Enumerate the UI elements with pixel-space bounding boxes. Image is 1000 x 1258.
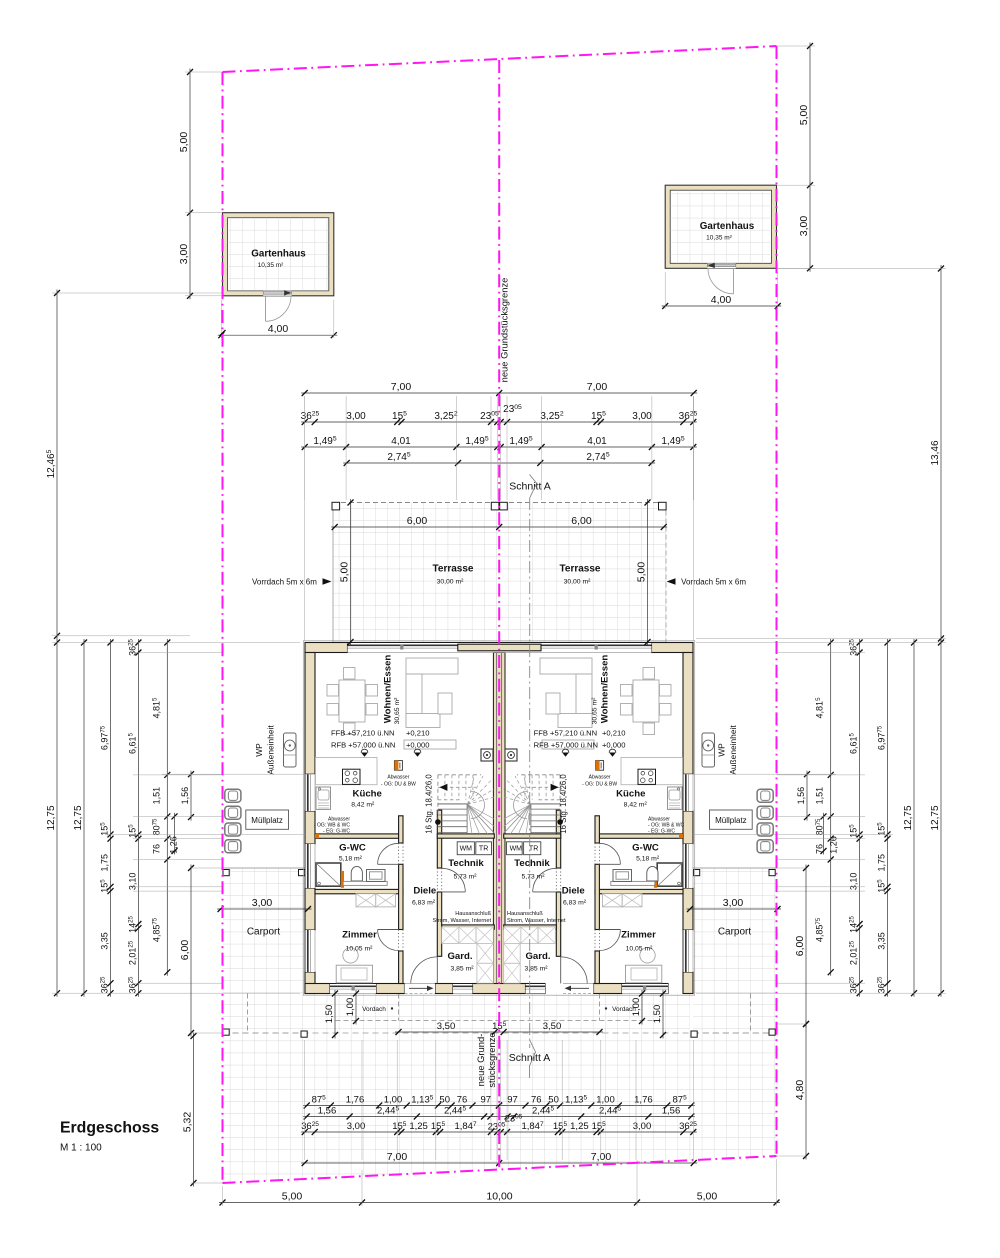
svg-text:76: 76 bbox=[531, 1094, 542, 1105]
svg-text:6,83 m²: 6,83 m² bbox=[412, 900, 436, 907]
svg-text:5,00: 5,00 bbox=[282, 1190, 303, 1202]
svg-text:1,76: 1,76 bbox=[634, 1094, 653, 1105]
svg-text:+0,000: +0,000 bbox=[406, 741, 429, 750]
svg-text:+0,210: +0,210 bbox=[602, 729, 625, 738]
svg-text:Küche: Küche bbox=[616, 789, 645, 800]
svg-text:Außeneinheit: Außeneinheit bbox=[728, 725, 738, 775]
svg-text:RFB +57,000 ü.NN: RFB +57,000 ü.NN bbox=[534, 741, 598, 750]
svg-text:Strom, Wasser, Internet: Strom, Wasser, Internet bbox=[432, 918, 491, 924]
svg-text:1,51: 1,51 bbox=[151, 787, 161, 805]
svg-text:5,00: 5,00 bbox=[178, 132, 190, 153]
svg-text:3,00: 3,00 bbox=[252, 897, 273, 909]
svg-text:10,35 m²: 10,35 m² bbox=[258, 262, 284, 269]
svg-text:1,26: 1,26 bbox=[829, 836, 839, 854]
svg-text:10,05 m²: 10,05 m² bbox=[626, 946, 654, 953]
svg-text:stücksgrenze: stücksgrenze bbox=[486, 1032, 497, 1087]
svg-text:4,01: 4,01 bbox=[391, 436, 411, 447]
svg-text:1,75: 1,75 bbox=[877, 854, 887, 872]
svg-text:1,50: 1,50 bbox=[324, 1005, 335, 1024]
svg-text:1,25: 1,25 bbox=[409, 1121, 428, 1132]
svg-text:12,465: 12,465 bbox=[46, 449, 57, 478]
svg-text:Wohnen/Essen: Wohnen/Essen bbox=[600, 655, 611, 724]
svg-text:WP: WP bbox=[717, 743, 727, 757]
svg-text:3,10: 3,10 bbox=[849, 873, 859, 891]
svg-text:1,75: 1,75 bbox=[100, 854, 110, 872]
svg-text:Abwasser: Abwasser bbox=[589, 775, 611, 781]
svg-text:neue Grundstücksgrenze: neue Grundstücksgrenze bbox=[499, 278, 510, 383]
svg-text:16 Stg. 18,4/26,0: 16 Stg. 18,4/26,0 bbox=[559, 774, 568, 834]
svg-text:WP: WP bbox=[254, 743, 264, 757]
svg-text:Küche: Küche bbox=[353, 789, 382, 800]
svg-text:1,56: 1,56 bbox=[318, 1105, 337, 1116]
svg-text:6,83 m²: 6,83 m² bbox=[563, 900, 587, 907]
svg-text:Schnitt A: Schnitt A bbox=[509, 481, 550, 493]
svg-text:5,32: 5,32 bbox=[182, 1112, 194, 1133]
svg-text:WM: WM bbox=[510, 846, 523, 853]
svg-text:1,00: 1,00 bbox=[384, 1094, 403, 1105]
svg-text:13,46: 13,46 bbox=[930, 440, 941, 465]
svg-text:3,50: 3,50 bbox=[437, 1021, 456, 1032]
svg-text:30,00 m²: 30,00 m² bbox=[564, 579, 592, 586]
svg-text:12,75: 12,75 bbox=[46, 805, 57, 830]
svg-text:6,00: 6,00 bbox=[571, 515, 592, 527]
svg-text:10,00: 10,00 bbox=[486, 1190, 512, 1202]
svg-text:Abwasser: Abwasser bbox=[387, 775, 409, 781]
svg-text:7,00: 7,00 bbox=[587, 381, 608, 393]
svg-text:97: 97 bbox=[507, 1094, 518, 1105]
svg-text:Hausanschluß: Hausanschluß bbox=[507, 911, 543, 917]
svg-text:+0,210: +0,210 bbox=[406, 729, 429, 738]
svg-text:Hausanschluß: Hausanschluß bbox=[455, 911, 491, 917]
svg-text:Vorrdach 5m x 6m: Vorrdach 5m x 6m bbox=[681, 578, 746, 587]
svg-text:12,75: 12,75 bbox=[73, 805, 84, 830]
svg-text:Terrasse: Terrasse bbox=[433, 564, 474, 575]
svg-text:Müllplatz: Müllplatz bbox=[715, 816, 747, 825]
svg-text:- EG: G-WC: - EG: G-WC bbox=[323, 829, 350, 835]
svg-text:3,85 m²: 3,85 m² bbox=[524, 966, 548, 973]
svg-text:FFB +57,210 ü.NN: FFB +57,210 ü.NN bbox=[534, 729, 598, 738]
svg-text:5,18 m²: 5,18 m² bbox=[339, 856, 363, 863]
svg-text:4,00: 4,00 bbox=[268, 323, 289, 335]
svg-text:Schnitt A: Schnitt A bbox=[509, 1052, 550, 1064]
svg-text:3,00: 3,00 bbox=[346, 411, 366, 422]
svg-text:6,00: 6,00 bbox=[179, 940, 191, 961]
svg-text:Zimmer: Zimmer bbox=[621, 930, 656, 941]
svg-text:3,00: 3,00 bbox=[632, 411, 652, 422]
svg-text:FFB +57,210 ü.NN: FFB +57,210 ü.NN bbox=[331, 729, 395, 738]
svg-text:5,00: 5,00 bbox=[339, 562, 351, 583]
svg-text:- EG: G-WC: - EG: G-WC bbox=[648, 829, 675, 835]
svg-text:Müllplatz: Müllplatz bbox=[251, 816, 283, 825]
svg-text:Gartenhaus: Gartenhaus bbox=[700, 221, 755, 232]
svg-text:1,00: 1,00 bbox=[596, 1094, 615, 1105]
svg-text:1,25: 1,25 bbox=[570, 1121, 589, 1132]
svg-text:5,73 m²: 5,73 m² bbox=[453, 874, 477, 881]
svg-text:50: 50 bbox=[548, 1094, 559, 1105]
svg-text:3,00: 3,00 bbox=[347, 1121, 366, 1132]
svg-text:7,00: 7,00 bbox=[391, 381, 412, 393]
svg-text:5,00: 5,00 bbox=[798, 105, 810, 126]
svg-text:3,35: 3,35 bbox=[100, 932, 110, 950]
svg-text:6,00: 6,00 bbox=[794, 936, 806, 957]
svg-text:Diele: Diele bbox=[562, 886, 585, 897]
svg-text:3,00: 3,00 bbox=[178, 244, 190, 265]
svg-text:Technik: Technik bbox=[514, 858, 550, 869]
svg-text:10,35 m²: 10,35 m² bbox=[706, 235, 732, 242]
svg-text:4,80: 4,80 bbox=[794, 1080, 806, 1101]
svg-text:3,85 m²: 3,85 m² bbox=[450, 966, 474, 973]
svg-text:Strom, Wasser, Internet: Strom, Wasser, Internet bbox=[507, 918, 566, 924]
svg-text:Wohnen/Essen: Wohnen/Essen bbox=[383, 655, 394, 724]
svg-text:12,75: 12,75 bbox=[903, 805, 914, 830]
svg-text:7,00: 7,00 bbox=[591, 1151, 612, 1163]
svg-text:RFB +57,000 ü.NN: RFB +57,000 ü.NN bbox=[331, 741, 395, 750]
svg-text:Terrasse: Terrasse bbox=[560, 564, 601, 575]
svg-text:1,56: 1,56 bbox=[662, 1105, 681, 1116]
svg-text:Erdgeschoss: Erdgeschoss bbox=[60, 1120, 159, 1137]
svg-text:16 Stg. 18,4/26,0: 16 Stg. 18,4/26,0 bbox=[425, 774, 434, 834]
svg-text:97: 97 bbox=[481, 1094, 492, 1105]
svg-text:3,10: 3,10 bbox=[127, 873, 137, 891]
svg-text:5,00: 5,00 bbox=[636, 562, 648, 583]
svg-text:+0,000: +0,000 bbox=[602, 741, 625, 750]
svg-text:10,05 m²: 10,05 m² bbox=[346, 946, 374, 953]
svg-text:3,00: 3,00 bbox=[723, 897, 744, 909]
svg-text:5,18 m²: 5,18 m² bbox=[636, 856, 660, 863]
svg-text:30,65 m²: 30,65 m² bbox=[394, 697, 401, 725]
svg-text:1,56: 1,56 bbox=[180, 787, 190, 805]
svg-text:6,00: 6,00 bbox=[407, 515, 428, 527]
svg-text:Gard.: Gard. bbox=[447, 951, 472, 962]
svg-text:- OG: DU & BW: - OG: DU & BW bbox=[582, 782, 617, 788]
svg-text:30,65 m²: 30,65 m² bbox=[592, 697, 599, 725]
svg-text:3,50: 3,50 bbox=[543, 1021, 562, 1032]
svg-text:Vorrdach 5m x 6m: Vorrdach 5m x 6m bbox=[252, 578, 317, 587]
svg-text:1,00: 1,00 bbox=[345, 998, 356, 1017]
svg-text:Vordach: Vordach bbox=[362, 1006, 386, 1013]
svg-text:- OG: DU & BW: - OG: DU & BW bbox=[381, 782, 416, 788]
svg-text:76: 76 bbox=[151, 844, 161, 854]
svg-text:Diele: Diele bbox=[413, 886, 436, 897]
svg-text:8,42 m²: 8,42 m² bbox=[351, 802, 375, 809]
svg-text:12,75: 12,75 bbox=[930, 805, 941, 830]
svg-text:neue Grund-: neue Grund- bbox=[475, 1034, 486, 1087]
svg-text:8,42 m²: 8,42 m² bbox=[624, 802, 648, 809]
svg-text:G-WC: G-WC bbox=[339, 843, 366, 854]
svg-text:Carport: Carport bbox=[247, 927, 281, 938]
svg-text:3,00: 3,00 bbox=[633, 1121, 652, 1132]
svg-text:30,00 m²: 30,00 m² bbox=[437, 579, 465, 586]
svg-text:M 1 : 100: M 1 : 100 bbox=[60, 1143, 102, 1154]
svg-text:G-WC: G-WC bbox=[632, 843, 659, 854]
svg-text:1,56: 1,56 bbox=[796, 787, 806, 805]
svg-text:WM: WM bbox=[460, 846, 473, 853]
svg-text:Technik: Technik bbox=[448, 858, 484, 869]
svg-text:1,76: 1,76 bbox=[346, 1094, 365, 1105]
svg-text:50: 50 bbox=[439, 1094, 450, 1105]
svg-text:1,00: 1,00 bbox=[631, 998, 642, 1017]
svg-text:Zimmer: Zimmer bbox=[342, 930, 377, 941]
svg-text:Gartenhaus: Gartenhaus bbox=[251, 249, 306, 260]
svg-text:Außeneinheit: Außeneinheit bbox=[266, 725, 276, 775]
svg-text:3,00: 3,00 bbox=[798, 216, 810, 237]
svg-text:1,26: 1,26 bbox=[169, 836, 179, 854]
svg-text:5,00: 5,00 bbox=[697, 1190, 718, 1202]
svg-text:4,01: 4,01 bbox=[587, 436, 607, 447]
svg-text:76: 76 bbox=[457, 1094, 468, 1105]
svg-text:4,00: 4,00 bbox=[711, 294, 732, 306]
svg-text:Carport: Carport bbox=[718, 927, 752, 938]
svg-text:1,51: 1,51 bbox=[815, 787, 825, 805]
svg-text:TR: TR bbox=[479, 846, 488, 853]
svg-text:TR: TR bbox=[529, 846, 538, 853]
svg-text:Gard.: Gard. bbox=[525, 951, 550, 962]
svg-text:5,73 m²: 5,73 m² bbox=[521, 874, 545, 881]
svg-text:1,50: 1,50 bbox=[652, 1005, 663, 1024]
svg-text:3,35: 3,35 bbox=[877, 932, 887, 950]
